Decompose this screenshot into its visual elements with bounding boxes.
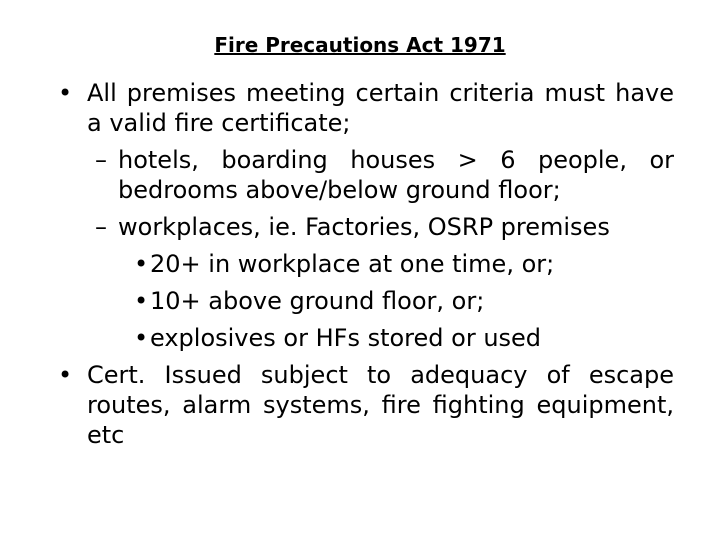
bullet-item: – workplaces, ie. Factories, OSRP premis… xyxy=(0,212,674,242)
bullet-text: All premises meeting certain criteria mu… xyxy=(87,79,674,137)
bullet-text: Cert. Issued subject to adequacy of esca… xyxy=(87,361,674,449)
dash-marker: – xyxy=(95,145,107,175)
bullet-marker: • xyxy=(134,249,148,279)
bullet-item: – hotels, boarding houses > 6 people, or… xyxy=(0,145,674,205)
dash-marker: – xyxy=(95,212,107,242)
bullet-item: • Cert. Issued subject to adequacy of es… xyxy=(0,360,674,450)
bullet-marker: • xyxy=(134,323,148,353)
bullet-marker: • xyxy=(58,78,72,108)
bullet-text: hotels, boarding houses > 6 people, or b… xyxy=(118,146,674,204)
bullet-text: 20+ in workplace at one time, or; xyxy=(150,250,554,278)
bullet-list: • All premises meeting certain criteria … xyxy=(0,78,674,450)
bullet-item: • 20+ in workplace at one time, or; xyxy=(0,249,674,279)
slide: Fire Precautions Act 1971 • All premises… xyxy=(0,0,720,540)
bullet-item: • All premises meeting certain criteria … xyxy=(0,78,674,138)
bullet-text: 10+ above ground floor, or; xyxy=(150,287,484,315)
bullet-item: • explosives or HFs stored or used xyxy=(0,323,674,353)
bullet-text: explosives or HFs stored or used xyxy=(150,324,541,352)
bullet-item: • 10+ above ground floor, or; xyxy=(0,286,674,316)
bullet-marker: • xyxy=(134,286,148,316)
slide-title: Fire Precautions Act 1971 xyxy=(0,33,720,57)
bullet-marker: • xyxy=(58,360,72,390)
bullet-text: workplaces, ie. Factories, OSRP premises xyxy=(118,213,610,241)
